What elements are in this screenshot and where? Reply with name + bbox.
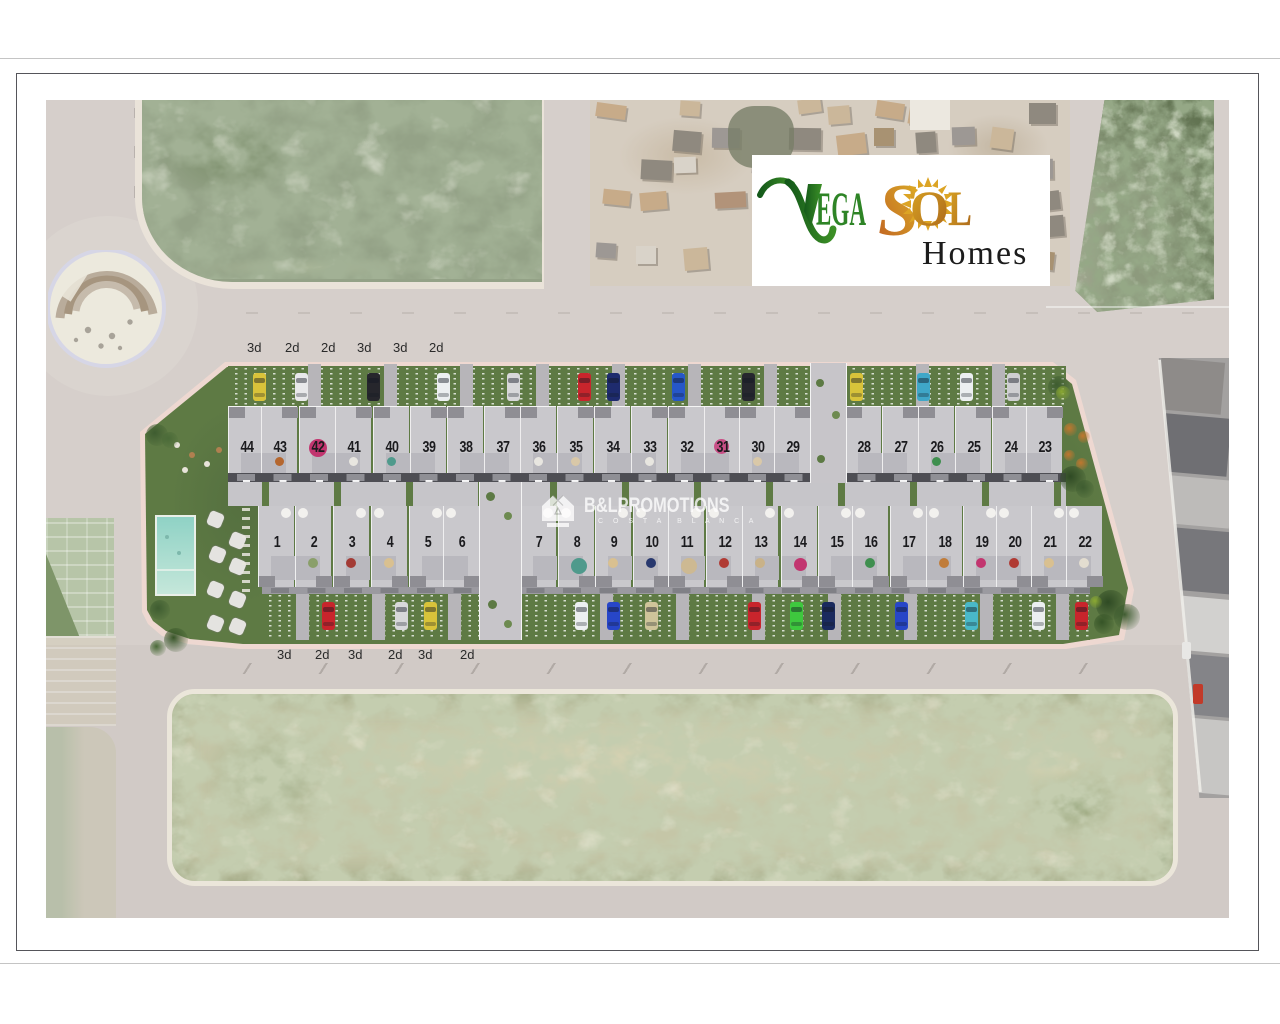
- svg-text:EGA: EGA: [816, 183, 866, 236]
- svg-text:Homes: Homes: [922, 235, 1028, 272]
- svg-text:L: L: [948, 180, 972, 236]
- svg-text:O: O: [910, 180, 949, 236]
